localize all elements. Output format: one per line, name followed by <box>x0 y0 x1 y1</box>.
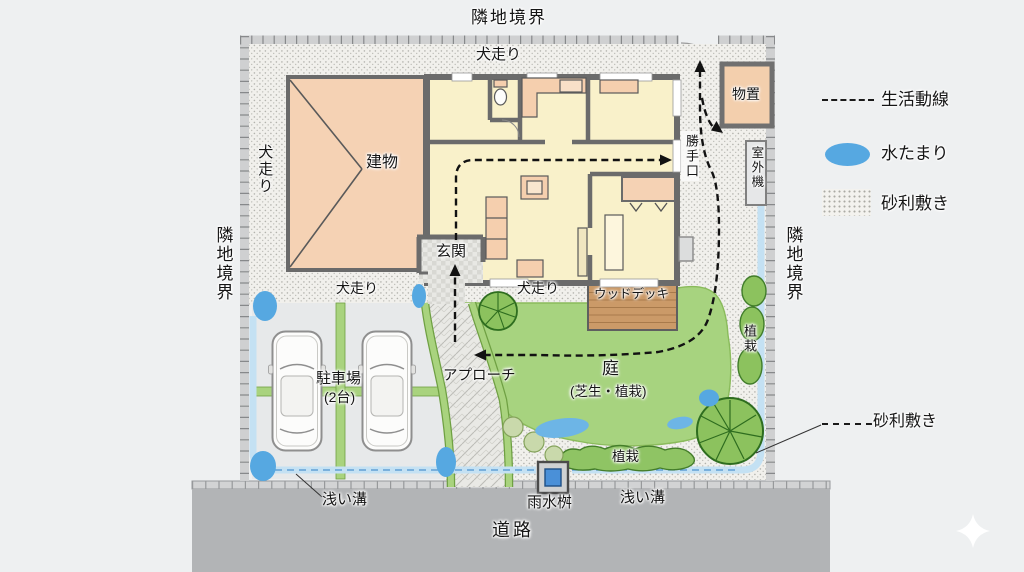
back-door-label: 勝手口 <box>683 134 698 179</box>
boundary-label-right: 隣地境界 <box>783 226 803 302</box>
parking-label-line1: 駐車場 <box>316 370 361 387</box>
parking-label-line2: (2台) <box>324 389 355 405</box>
dog-run-label-left: 犬走り <box>256 144 273 195</box>
legend-label-puddle: 水たまり <box>881 144 949 164</box>
outdoor-unit-label: 室外機 <box>749 146 763 190</box>
building-label: 建物 <box>366 154 398 172</box>
boundary-label-left: 隣地境界 <box>213 226 233 302</box>
planting-label-bottom: 植栽 <box>612 449 639 465</box>
entrance-label: 玄関 <box>436 243 466 260</box>
road-label: 道路 <box>492 520 534 541</box>
legend-label-activity-line: 生活動線 <box>881 90 949 110</box>
ditch-label-right: 浅い溝 <box>620 489 665 506</box>
legend-gravel-swatch <box>822 189 871 216</box>
car <box>269 332 326 451</box>
back-door-opening <box>673 140 681 172</box>
gravel-annotation-dash <box>822 423 872 425</box>
legend-label-gravel: 砂利敷き <box>881 194 949 214</box>
ditch-label-left: 浅い溝 <box>322 491 367 508</box>
dog-run-label-bottom-mid: 犬走り <box>517 280 559 296</box>
wood-deck-label: ウッドデッキ <box>594 287 669 301</box>
building-roof <box>288 77 425 270</box>
legend-dashed-line-swatch <box>822 99 874 101</box>
ac-unit-small <box>679 237 693 261</box>
tree-large <box>697 398 763 464</box>
approach-label: アプローチ <box>443 368 516 385</box>
shed-label: 物置 <box>732 86 760 102</box>
planting-label-right: 植栽 <box>741 324 756 354</box>
sparkle-watermark <box>956 514 990 548</box>
tree-small <box>479 292 517 330</box>
dog-run-label-top: 犬走り <box>476 46 521 63</box>
rain-basin-label: 雨水桝 <box>527 494 572 511</box>
rain-basin <box>538 462 568 493</box>
site-plan-diagram: 隣地境界 隣地境界 隣地境界 道路 犬走り 犬走り 犬走り 犬走り 建物 物置 … <box>0 0 1024 572</box>
boundary-label-top: 隣地境界 <box>471 8 547 28</box>
car <box>359 332 416 451</box>
dog-run-label-bottom-left: 犬走り <box>336 280 378 296</box>
garden-subtitle: (芝生・植栽) <box>570 384 647 400</box>
legend-puddle-swatch <box>825 143 870 166</box>
gravel-annotation-label: 砂利敷き <box>873 413 937 431</box>
garden-title: 庭 <box>602 359 619 379</box>
site-plan-drawing <box>0 0 1024 572</box>
